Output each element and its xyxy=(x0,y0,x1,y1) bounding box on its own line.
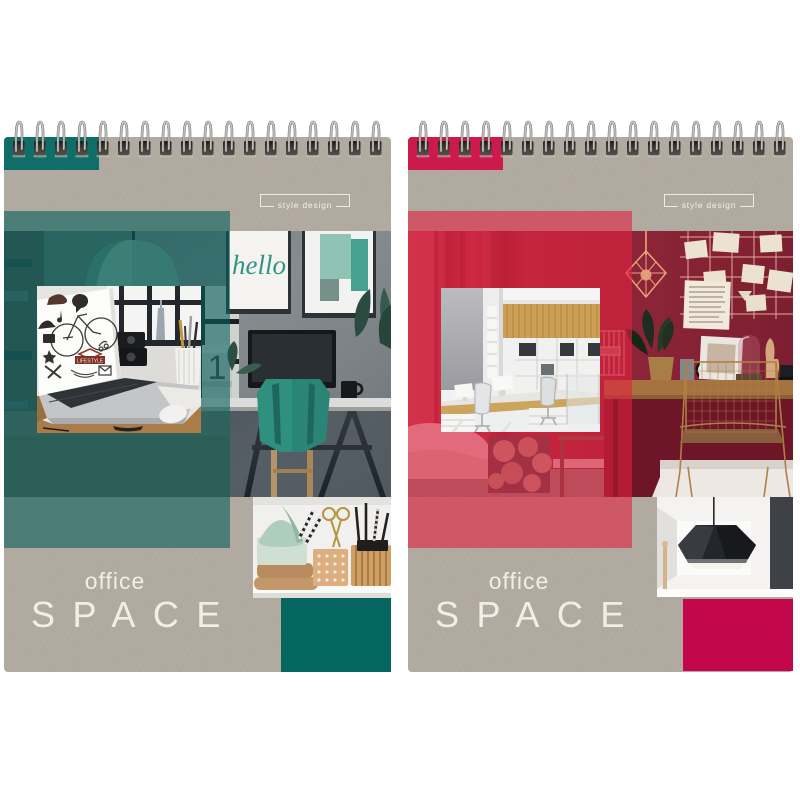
svg-text:LIFESTYLE: LIFESTYLE xyxy=(77,359,104,365)
svg-text:hello: hello xyxy=(232,250,286,280)
